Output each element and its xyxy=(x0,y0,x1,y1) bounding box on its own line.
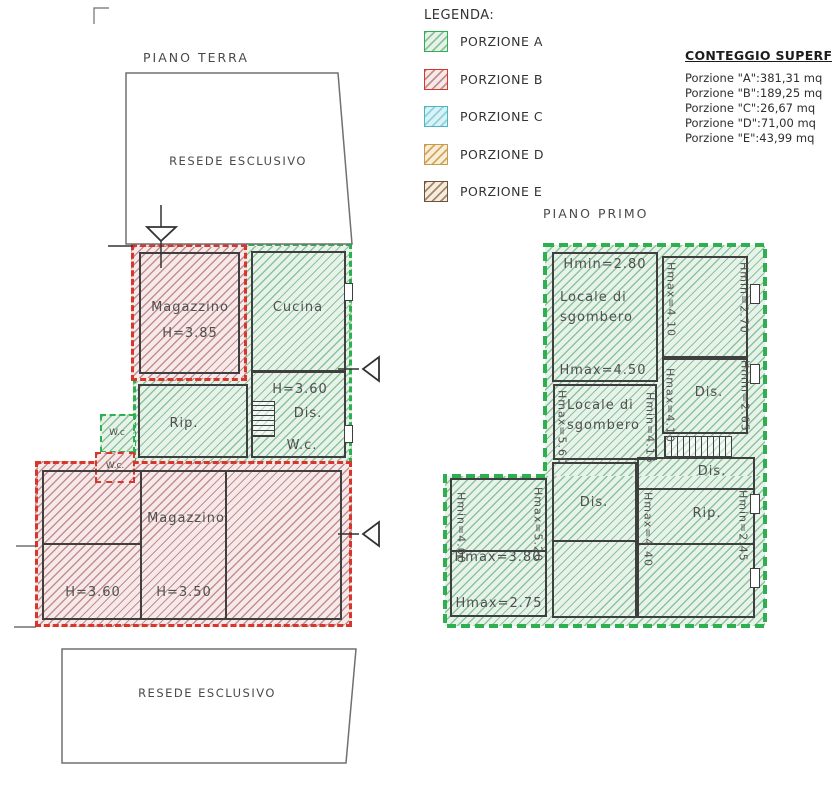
room-label-magazzino-top-height: H=3.85 xyxy=(162,326,218,341)
sheet-corner-tick xyxy=(94,8,109,24)
room-label-magazzino-bottom: Magazzino xyxy=(147,511,225,526)
surfaces-table: Porzione "A": 381,31 mq Porzione "B": 18… xyxy=(685,71,799,146)
first-floor-title: PIANO PRIMO xyxy=(543,206,648,221)
room-label-cucina: Cucina xyxy=(273,300,323,315)
legend-label-porzione-c: PORZIONE C xyxy=(460,109,543,124)
entrance-arrow-icon-2 xyxy=(363,522,379,546)
wall-lower-divider-horiz xyxy=(42,543,142,545)
room-label-hall-wc: W.c. xyxy=(287,438,318,453)
label-dis1: Dis. xyxy=(695,385,724,400)
surfaces-row-e: Porzione "E": 43,99 mq xyxy=(685,131,799,146)
legend-swatch-porzione-a xyxy=(424,31,448,52)
label-rip-left: Hmax=4.40 xyxy=(642,492,655,567)
legend-item-a: PORZIONE A xyxy=(424,31,543,52)
legend-item-d: PORZIONE D xyxy=(424,144,544,165)
window-ground-1 xyxy=(344,283,353,301)
label-dis1-right: Hmin=2.65 xyxy=(739,360,752,432)
resede-top-label: RESEDE ESCLUSIVO xyxy=(169,154,307,168)
label-locale1-hmax: Hmax=4.50 xyxy=(560,363,647,378)
surfaces-row-c: Porzione "C": 26,67 mq xyxy=(685,101,799,116)
wall-lower-divider-center xyxy=(225,470,227,620)
label-dis2: Dis. xyxy=(698,464,727,479)
room-label-rip-ground: Rip. xyxy=(169,416,198,431)
surfaces-row-e-label: Porzione "E": xyxy=(685,131,759,146)
legend-item-c: PORZIONE C xyxy=(424,106,543,127)
legend-swatch-porzione-d xyxy=(424,144,448,165)
ground-floor-title: PIANO TERRA xyxy=(143,50,249,65)
room-label-hall-height: H=3.60 xyxy=(272,382,328,397)
surfaces-title: CONTEGGIO SUPERFICI: xyxy=(685,48,832,63)
room-label-h350: H=3.50 xyxy=(156,585,212,600)
legend-swatch-porzione-b xyxy=(424,69,448,90)
wall-divider-dis3 xyxy=(552,540,637,542)
legend-label-porzione-e: PORZIONE E xyxy=(460,184,542,199)
floor-plan-sheet: PIANO TERRA Magazzino H=3.85 Cucina H=3.… xyxy=(0,0,832,787)
label-rip-first: Rip. xyxy=(692,506,721,521)
resede-bottom-boundary xyxy=(62,649,356,763)
room-label-wc-red: W.c. xyxy=(106,461,125,471)
surfaces-row-b-value: 189,25 mq xyxy=(760,86,822,101)
surfaces-row-e-value: 43,99 mq xyxy=(759,131,814,146)
label-locale1-name: Locale di sgombero xyxy=(560,288,652,328)
surfaces-row-a-value: 381,31 mq xyxy=(760,71,822,86)
room-label-hall-dis: Dis. xyxy=(294,406,323,421)
label-room-ne-left: Hmax=4.10 xyxy=(665,262,678,337)
surfaces-row-a-label: Porzione "A": xyxy=(685,71,760,86)
label-dis3: Dis. xyxy=(580,495,609,510)
label-locale1-hmin: Hmin=2.80 xyxy=(563,257,646,272)
window-ground-2 xyxy=(344,425,353,443)
room-label-h360: H=3.60 xyxy=(65,585,121,600)
resede-bottom-label: RESEDE ESCLUSIVO xyxy=(138,686,276,700)
surfaces-row-d-label: Porzione "D": xyxy=(685,116,761,131)
legend-label-porzione-b: PORZIONE B xyxy=(460,72,543,87)
window-first-3 xyxy=(750,494,760,514)
surfaces-row-d-value: 71,00 mq xyxy=(761,116,816,131)
legend-item-b: PORZIONE B xyxy=(424,69,543,90)
legend-item-e: PORZIONE E xyxy=(424,181,542,202)
window-first-4 xyxy=(750,568,760,588)
surfaces-row-c-label: Porzione "C": xyxy=(685,101,760,116)
label-rip-right: Hmin=2.45 xyxy=(737,490,750,562)
surfaces-row-a: Porzione "A": 381,31 mq xyxy=(685,71,799,86)
surfaces-row-b: Porzione "B": 189,25 mq xyxy=(685,86,799,101)
datum-triangle-icon xyxy=(147,227,176,241)
entrance-arrow-icon-1 xyxy=(363,357,379,381)
legend-label-porzione-d: PORZIONE D xyxy=(460,147,544,162)
window-first-1 xyxy=(750,284,760,304)
surfaces-row-b-label: Porzione "B": xyxy=(685,86,760,101)
room-label-wc-green: W.c xyxy=(109,428,125,438)
legend-swatch-porzione-c xyxy=(424,106,448,127)
room-label-magazzino-top: Magazzino xyxy=(151,300,229,315)
legend-label-porzione-a: PORZIONE A xyxy=(460,34,543,49)
legend-swatch-porzione-e xyxy=(424,181,448,202)
surfaces-row-c-value: 26,67 mq xyxy=(760,101,815,116)
label-locale2-right: Hmin=4.15 xyxy=(644,392,657,464)
label-locale2-left: Hmax=5.60 xyxy=(556,390,569,465)
window-first-2 xyxy=(750,364,760,384)
legend-title: LEGENDA: xyxy=(424,8,494,23)
stairs-ground xyxy=(252,401,275,437)
wall-lower-divider-left xyxy=(140,470,142,620)
label-sw-bottom: Hmax=2.75 xyxy=(456,596,543,611)
label-room-ne-right: Hmin=2.70 xyxy=(738,262,751,334)
label-sw-mid: Hmax=3.80 xyxy=(455,550,542,565)
surfaces-row-d: Porzione "D": 71,00 mq xyxy=(685,116,799,131)
